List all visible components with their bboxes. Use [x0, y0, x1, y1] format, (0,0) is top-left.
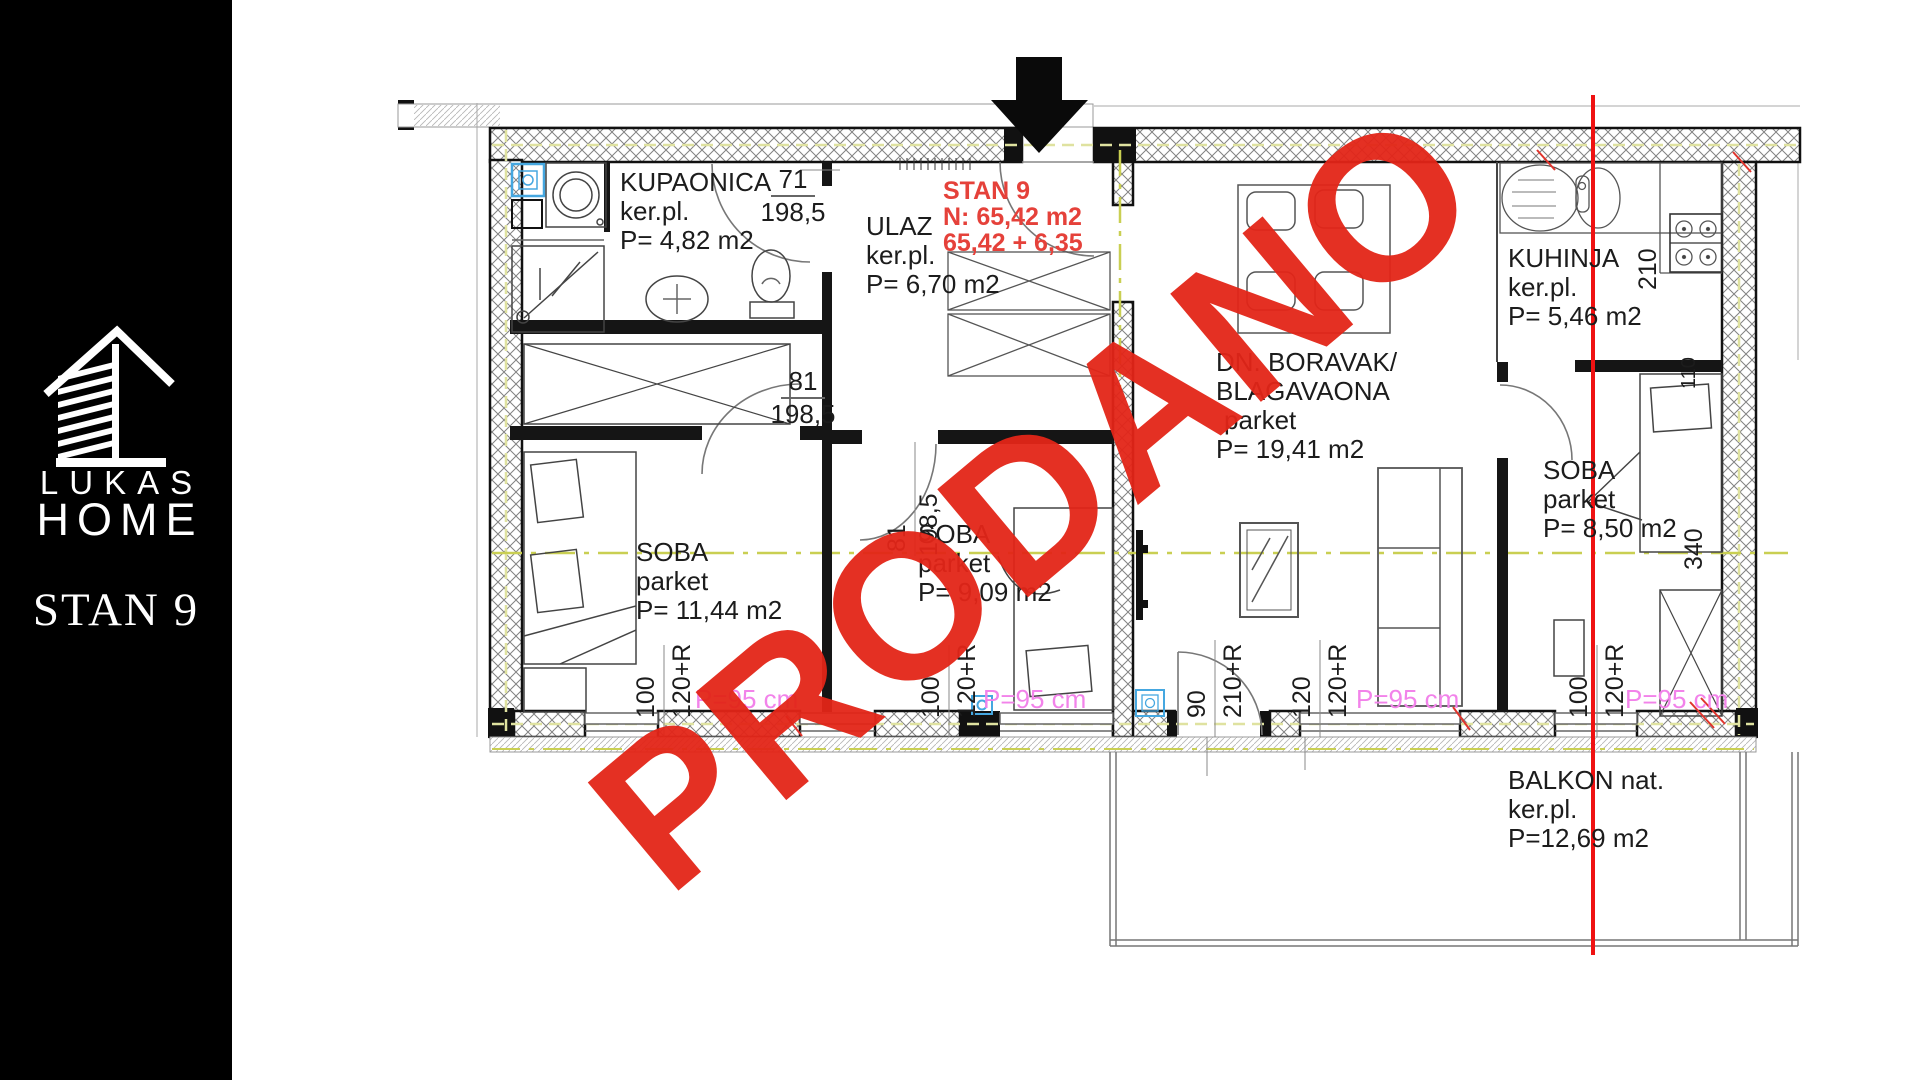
dim-win-soba3-a: 100: [1565, 676, 1593, 718]
room-name: SOBA: [1543, 456, 1677, 485]
label-balkon: BALKON nat. ker.pl. P=12,69 m2: [1508, 766, 1664, 853]
room-area: P= 8,50 m2: [1543, 514, 1677, 543]
dim-width: 81: [781, 366, 826, 399]
unit-total-area: 65,42 + 6,35: [943, 230, 1083, 256]
room-area: P= 4,82 m2: [620, 226, 771, 255]
room-name: KUHINJA: [1508, 244, 1642, 273]
dim-door-bath: 71 198,5: [745, 164, 841, 228]
unit-info: STAN 9 N: 65,42 m2 65,42 + 6,35: [943, 178, 1083, 256]
dim-height: 198,5: [760, 197, 825, 227]
dim-width: 71: [771, 164, 816, 197]
room-area: P= 6,70 m2: [866, 270, 1000, 299]
balcony-outline: [1110, 752, 1798, 946]
room-floor: ker.pl.: [1508, 273, 1642, 302]
dim-win-living-a: 120: [1288, 676, 1316, 718]
parapet-label-soba2: P=95 cm: [983, 684, 1086, 715]
label-soba3: SOBA parket P= 8,50 m2: [1543, 456, 1677, 543]
dim-soba3-length: 340: [1680, 528, 1708, 570]
room-floor: ker.pl.: [1508, 795, 1664, 824]
dim-kitchen-depth: 210: [1634, 248, 1662, 290]
parapet-label-living: P=95 cm: [1356, 684, 1459, 715]
slide: KUPAONICA ker.pl. P= 4,82 m2 71 198,5 UL…: [0, 0, 1920, 1080]
dim-door-balkon-a: 90: [1183, 690, 1211, 718]
room-name: BALKON nat.: [1508, 766, 1664, 795]
unit-net-area: N: 65,42 m2: [943, 204, 1083, 230]
room-name: SOBA: [636, 538, 782, 567]
dim-niche: 110: [1678, 357, 1700, 389]
dim-door-balkon-b: 210+R: [1219, 644, 1247, 718]
parapet-label-soba3: P=95 cm: [1625, 684, 1728, 715]
dim-height: 198,5: [770, 399, 835, 429]
dim-win-living-b: 120+R: [1324, 644, 1352, 718]
sidebar-unit-label: STAN 9: [0, 583, 232, 637]
room-floor: parket: [1543, 485, 1677, 514]
label-kuhinja: KUHINJA ker.pl. P= 5,46 m2: [1508, 244, 1642, 331]
dim-door-soba1: 81 198,5: [755, 366, 851, 430]
room-area: P=12,69 m2: [1508, 824, 1664, 853]
brand-home: HOME: [0, 494, 232, 546]
unit-title: STAN 9: [943, 178, 1083, 204]
room-area: P= 5,46 m2: [1508, 302, 1642, 331]
sidebar: LUKAS HOME STAN 9: [0, 0, 232, 1080]
